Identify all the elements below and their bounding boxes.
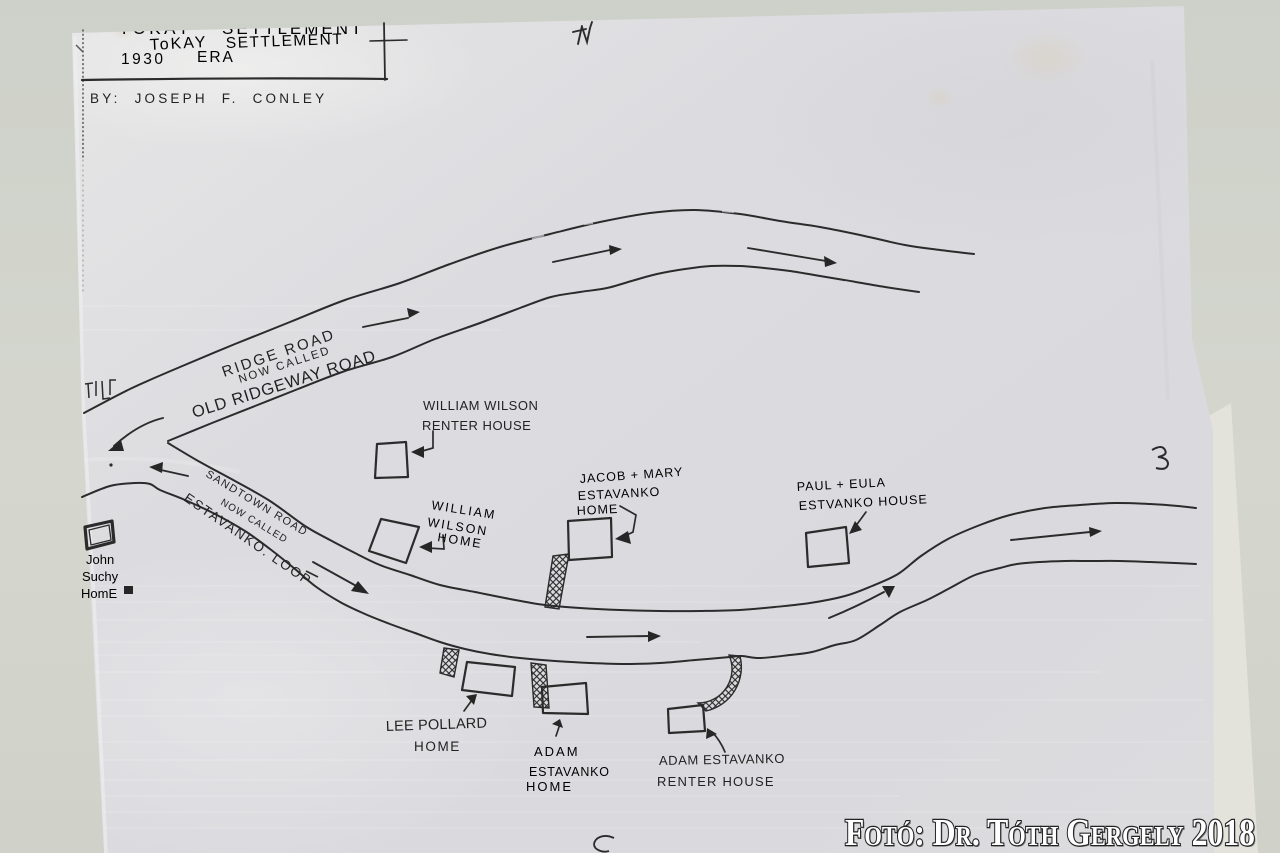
- svg-text:1930: 1930: [121, 51, 165, 68]
- svg-text:ESTAVANKO: ESTAVANKO: [529, 765, 610, 779]
- svg-text:ADAM ESTAVANKO: ADAM ESTAVANKO: [659, 751, 785, 768]
- svg-text:John: John: [86, 552, 114, 567]
- svg-text:HOME: HOME: [414, 739, 461, 754]
- svg-text:HOME: HOME: [576, 502, 618, 518]
- svg-text:BY: JOSEPH F. CONLEY: BY: JOSEPH F. CONLEY: [90, 91, 327, 106]
- svg-text:ERA: ERA: [197, 49, 235, 66]
- svg-text:ADAM: ADAM: [534, 744, 580, 759]
- svg-text:Fotó: Dr. Tóth Gergely 2018: Fotó: Dr. Tóth Gergely 2018: [845, 812, 1255, 853]
- svg-text:HOME: HOME: [526, 779, 573, 794]
- svg-text:Suchy: Suchy: [82, 569, 119, 584]
- svg-text:RENTER HOUSE: RENTER HOUSE: [657, 774, 775, 789]
- svg-text:HomE: HomE: [81, 586, 117, 601]
- svg-text:RENTER HOUSE: RENTER HOUSE: [422, 418, 531, 433]
- svg-text:WILLIAM WILSON: WILLIAM WILSON: [423, 398, 538, 413]
